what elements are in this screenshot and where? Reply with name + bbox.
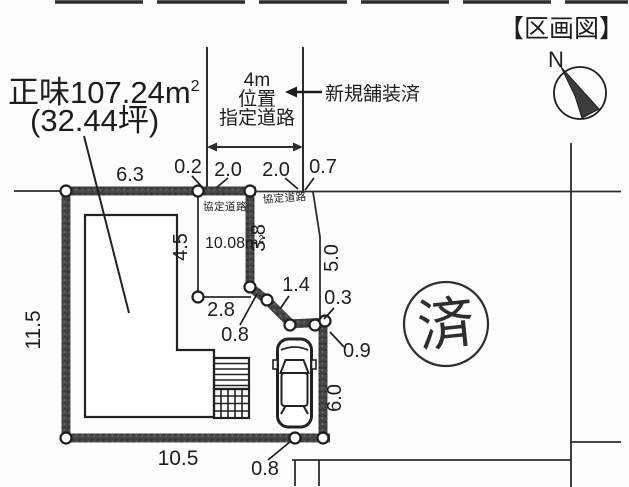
designated-road-line1: 4m (244, 70, 270, 91)
lot-plan-drawing: N 済 【区画図】 正味107.24m2 (32.44坪) 4m 位置 指定道路… (0, 0, 629, 487)
dim-east-upper: 5.0 (321, 244, 343, 272)
page-title: 【区画図】 (499, 15, 624, 43)
dim-strip-height: 4.5 (170, 233, 192, 261)
compass-icon: N (548, 47, 606, 119)
porch-steps (214, 358, 249, 418)
dim-kyotei-right: 2.0 (262, 159, 290, 181)
dim-notch-diag-long: 1.4 (282, 274, 310, 296)
car-icon (273, 339, 316, 427)
dim-gap-left: 0.2 (174, 156, 202, 178)
designated-road-line2: 位置 (238, 88, 276, 110)
dim-west-height: 11.5 (22, 310, 45, 349)
net-area-sup: 2 (191, 78, 200, 95)
dim-south-width: 10.5 (158, 447, 199, 470)
agreement-road-left-label: 協定道路 (203, 200, 247, 213)
dim-kyotei-left: 2.0 (214, 159, 242, 181)
dim-east-point-offset: 0.9 (343, 340, 371, 362)
dim-east-lower: 6.0 (324, 384, 346, 412)
paved-note-label: 新規舗装済 (325, 83, 420, 105)
building-outline (85, 215, 214, 417)
dim-top-width: 6.3 (116, 164, 144, 186)
lot-plan-page: N 済 【区画図】 正味107.24m2 (32.44坪) 4m 位置 指定道路… (0, 0, 629, 487)
road-width-dimension (207, 143, 303, 152)
compass-north-label: N (548, 47, 564, 72)
dim-gap-right: 0.7 (309, 156, 337, 178)
dim-south-gap: 0.8 (251, 458, 279, 480)
tsubo-label: (32.44坪) (30, 103, 159, 138)
completed-stamp: 済 (404, 282, 488, 366)
stamp-character: 済 (414, 289, 478, 361)
dim-corner-gap: 0.3 (324, 287, 352, 309)
dim-notch-width: 2.8 (207, 299, 235, 321)
dim-strip-right-height: 3.8 (248, 224, 270, 252)
dim-notch-diag-short: 0.8 (221, 324, 249, 346)
designated-road-line3: 指定道路 (219, 107, 295, 129)
